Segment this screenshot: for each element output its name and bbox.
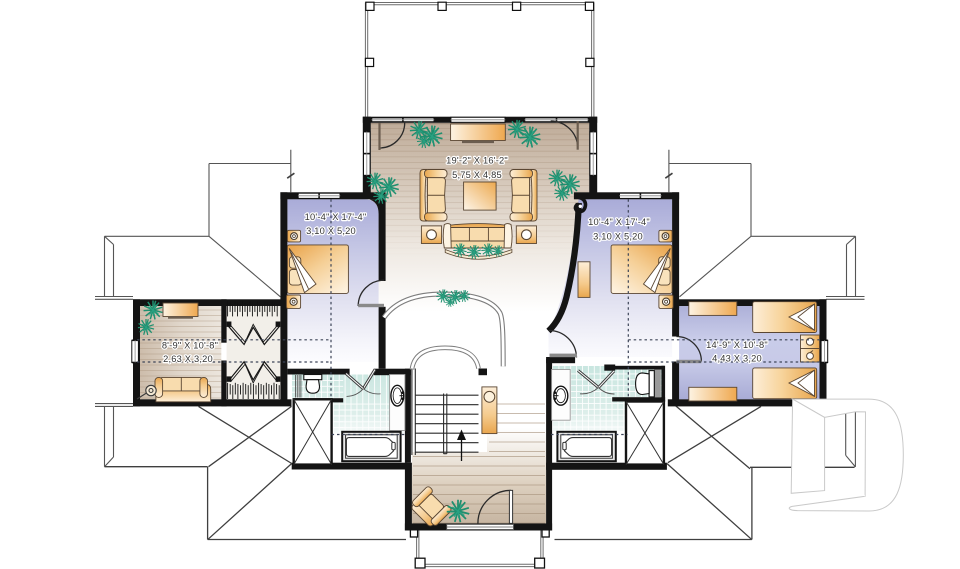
svg-text:3,10 X 5,20: 3,10 X 5,20 (306, 226, 356, 236)
svg-text:10'-4" X 17'-4": 10'-4" X 17'-4" (588, 217, 650, 227)
svg-text:19'-2" X 16'-2": 19'-2" X 16'-2" (446, 155, 508, 165)
svg-text:14'-9" X 10'-8": 14'-9" X 10'-8" (706, 340, 768, 350)
svg-text:8'-9" X 10'-8": 8'-9" X 10'-8" (162, 341, 218, 351)
svg-text:3,10 X 5,20: 3,10 X 5,20 (593, 232, 643, 242)
svg-text:10'-4" X 17'-4": 10'-4" X 17'-4" (305, 212, 367, 222)
svg-text:5,75 X 4,85: 5,75 X 4,85 (452, 170, 502, 180)
svg-text:2,63 X 3,20: 2,63 X 3,20 (163, 354, 213, 364)
svg-text:4,43 X 3,20: 4,43 X 3,20 (712, 354, 762, 364)
